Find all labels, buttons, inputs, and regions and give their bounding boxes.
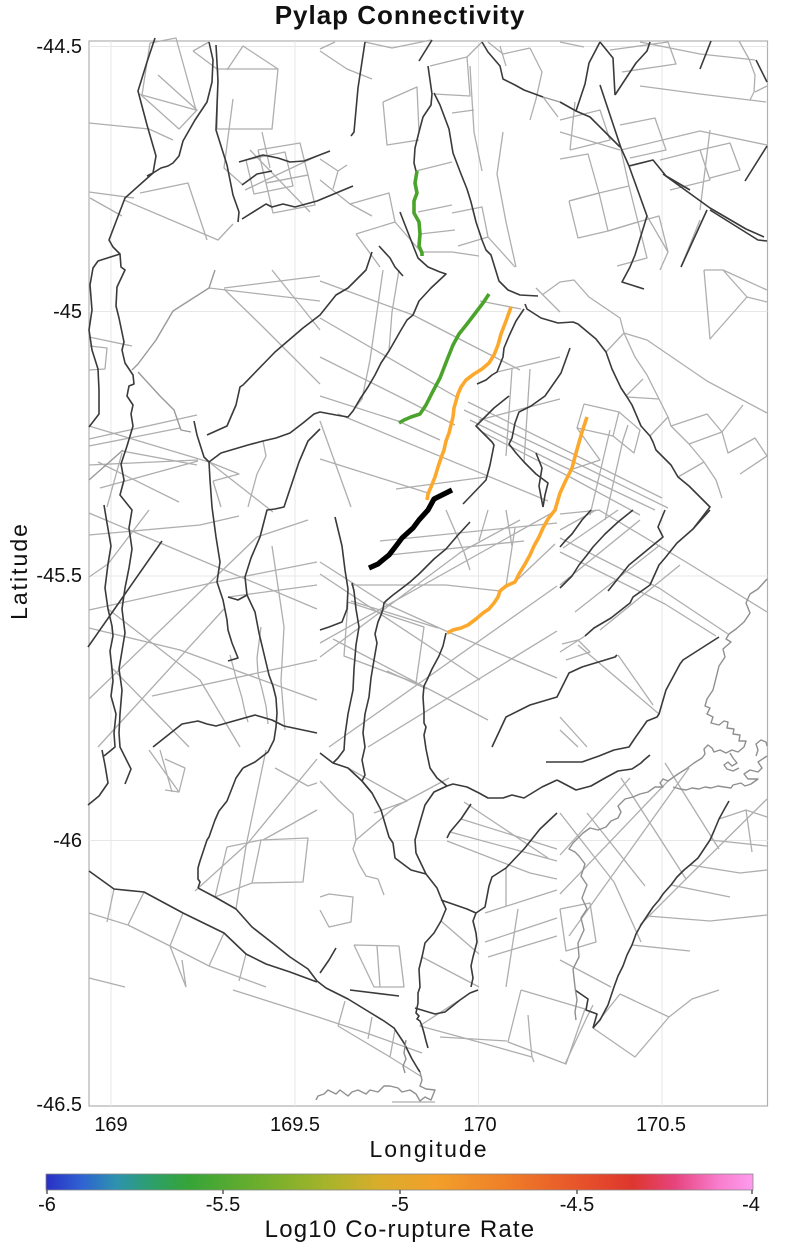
svg-text:-46.5: -46.5 <box>36 1094 82 1116</box>
svg-text:Latitude: Latitude <box>6 522 32 620</box>
svg-text:170.5: 170.5 <box>636 1114 686 1136</box>
svg-text:-4.5: -4.5 <box>560 1194 594 1216</box>
svg-text:Pylap Connectivity: Pylap Connectivity <box>275 0 526 30</box>
svg-text:-5: -5 <box>391 1194 409 1216</box>
svg-text:-5.5: -5.5 <box>206 1194 240 1216</box>
svg-text:-45.5: -45.5 <box>36 565 82 587</box>
svg-text:Log10 Co-rupture Rate: Log10 Co-rupture Rate <box>265 1216 536 1243</box>
svg-text:-4: -4 <box>742 1194 760 1216</box>
svg-text:169: 169 <box>94 1114 127 1136</box>
svg-text:170: 170 <box>463 1114 496 1136</box>
svg-text:-6: -6 <box>38 1194 56 1216</box>
svg-text:-45: -45 <box>53 301 82 323</box>
svg-text:-46: -46 <box>53 830 82 852</box>
svg-text:169.5: 169.5 <box>270 1114 320 1136</box>
svg-text:-44.5: -44.5 <box>36 36 82 58</box>
svg-text:Longitude: Longitude <box>369 1136 488 1162</box>
